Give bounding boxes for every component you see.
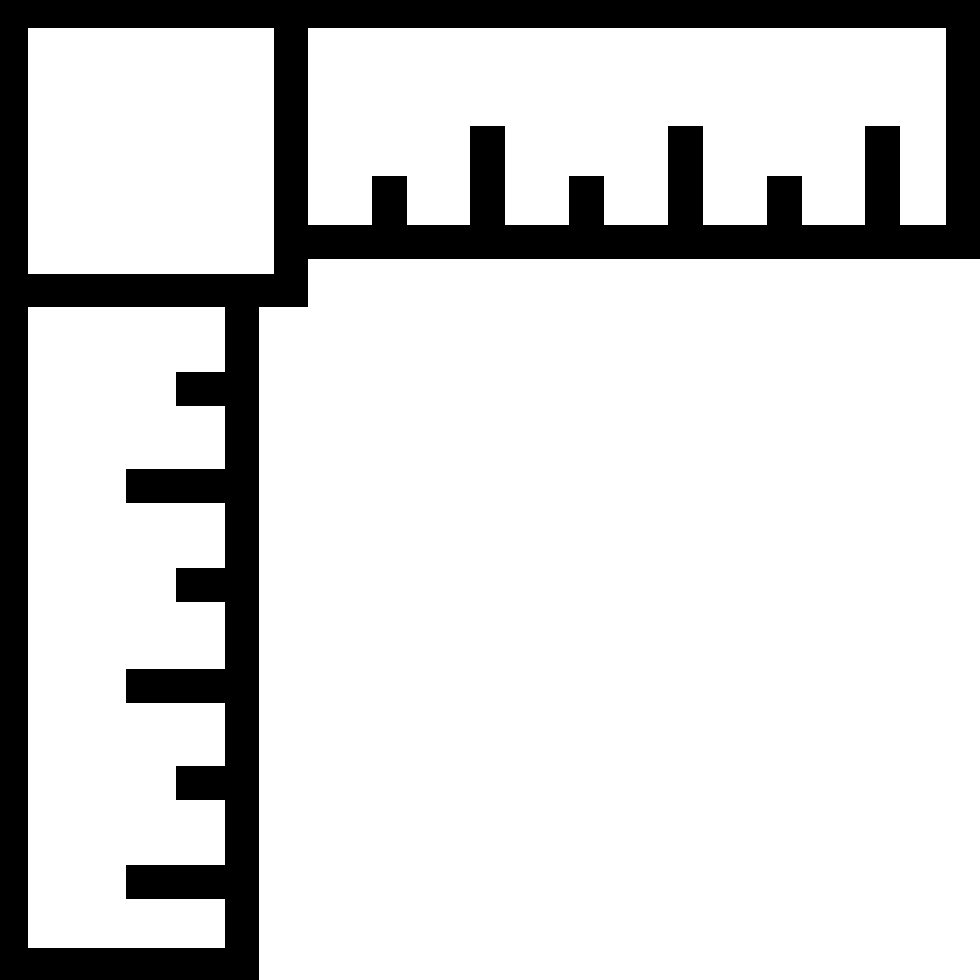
vertical-tick-short bbox=[176, 766, 259, 800]
horizontal-tick-long bbox=[865, 126, 900, 259]
corner-block-right-border bbox=[274, 0, 308, 307]
vertical-tick-short bbox=[176, 372, 259, 406]
vertical-tick-short bbox=[176, 568, 259, 602]
horizontal-tick-short bbox=[372, 176, 407, 259]
corner-block-bottom-border bbox=[0, 274, 308, 307]
horizontal-tick-short bbox=[767, 176, 802, 259]
horizontal-tick-short bbox=[569, 176, 604, 259]
carpenter-square-icon bbox=[0, 0, 980, 980]
vertical-tick-long bbox=[126, 865, 259, 899]
horizontal-tick-long bbox=[668, 126, 703, 259]
horizontal-arm-right-border bbox=[946, 0, 980, 259]
left-border-bar bbox=[0, 0, 28, 980]
vertical-tick-long bbox=[126, 469, 259, 503]
horizontal-tick-long bbox=[470, 126, 505, 259]
top-border-bar bbox=[0, 0, 980, 28]
vertical-tick-long bbox=[126, 669, 259, 703]
vertical-arm-bottom-border bbox=[0, 948, 259, 980]
